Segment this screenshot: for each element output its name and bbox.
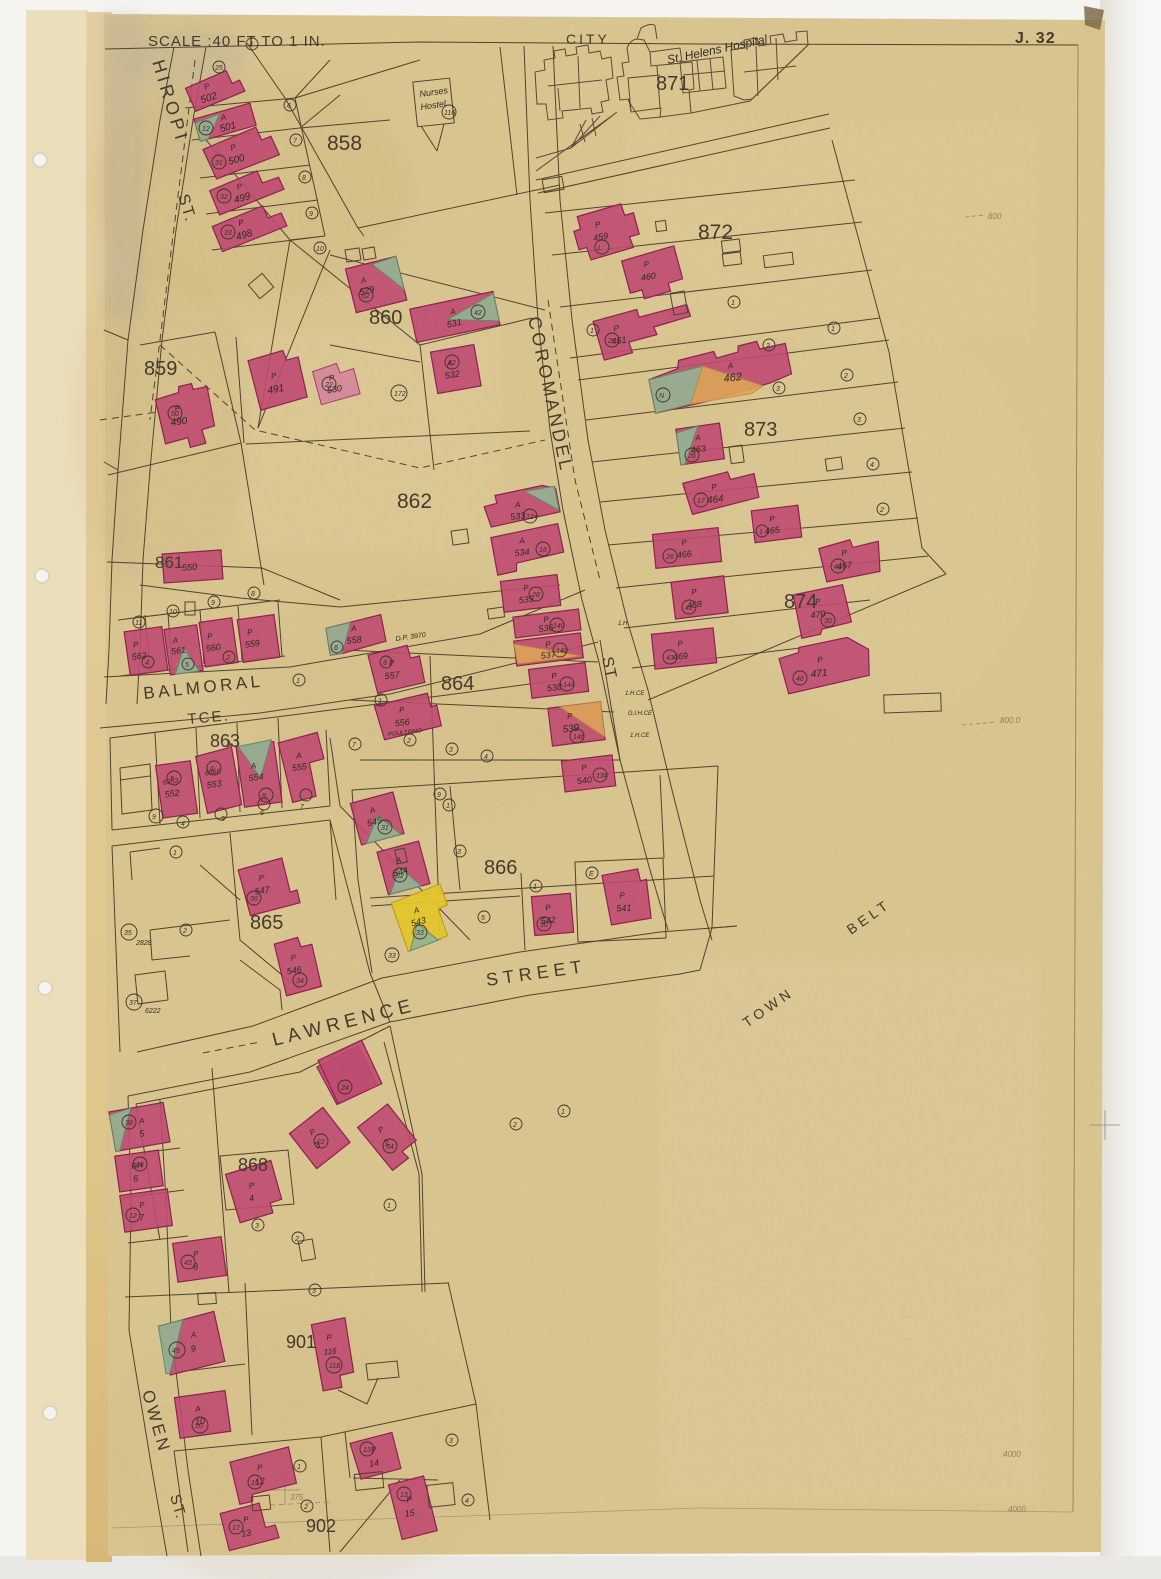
svg-text:2: 2 [294,1236,299,1243]
svg-text:863: 863 [210,731,240,751]
svg-text:540: 540 [576,775,592,787]
svg-text:552: 552 [164,788,180,800]
svg-text:3: 3 [449,1438,453,1445]
svg-text:33: 33 [388,953,396,960]
svg-text:5: 5 [170,776,174,783]
svg-text:E: E [589,871,594,878]
svg-text:874: 874 [784,591,817,613]
svg-text:32: 32 [396,873,404,880]
svg-text:561: 561 [170,645,186,657]
svg-text:554: 554 [248,771,264,783]
svg-text:124: 124 [526,514,538,521]
svg-text:4: 4 [145,660,149,667]
svg-text:A: A [295,751,303,761]
svg-text:8: 8 [383,660,387,667]
svg-text:34: 34 [296,978,304,985]
svg-text:17: 17 [232,1525,241,1532]
svg-text:9: 9 [211,600,215,607]
svg-text:32: 32 [220,194,228,201]
svg-text:2: 2 [765,343,770,350]
svg-text:866: 866 [484,857,517,879]
svg-text:31: 31 [381,825,389,832]
svg-text:11: 11 [135,620,142,627]
svg-text:2: 2 [225,655,230,662]
svg-text:A: A [694,433,702,443]
svg-text:42: 42 [474,310,482,317]
svg-text:22: 22 [316,1139,325,1146]
svg-text:4: 4 [465,1498,469,1505]
svg-text:4000: 4000 [1008,1505,1026,1514]
svg-text:4: 4 [484,754,488,761]
svg-text:1: 1 [173,850,177,857]
svg-text:1: 1 [533,884,537,891]
svg-text:J. 32: J. 32 [1015,30,1056,47]
svg-text:871: 871 [656,73,689,95]
svg-text:14: 14 [368,1458,379,1469]
svg-text:1: 1 [297,1464,301,1471]
svg-text:A: A [249,761,257,771]
svg-text:558: 558 [346,634,362,646]
svg-text:375: 375 [290,1493,304,1502]
svg-text:34: 34 [386,1144,394,1151]
svg-text:873: 873 [744,419,777,441]
svg-text:466: 466 [676,549,692,561]
svg-text:25: 25 [214,65,223,72]
svg-text:42: 42 [448,360,456,367]
svg-text:5: 5 [481,915,485,922]
svg-text:46: 46 [796,676,804,683]
svg-text:134: 134 [596,773,608,780]
svg-text:118: 118 [329,1363,340,1370]
svg-text:62: 62 [362,293,370,300]
svg-text:862: 862 [397,490,432,513]
svg-text:559: 559 [244,638,260,650]
svg-text:38: 38 [125,1120,133,1127]
svg-text:3: 3 [857,417,861,424]
svg-text:2: 2 [843,373,848,380]
svg-text:8: 8 [302,175,306,182]
svg-text:15: 15 [251,1480,259,1487]
svg-text:4: 4 [870,462,874,469]
svg-text:859: 859 [144,358,177,380]
svg-text:30: 30 [824,618,832,625]
svg-text:865: 865 [250,912,283,934]
svg-text:A: A [189,1330,197,1340]
svg-text:1: 1 [731,300,735,307]
svg-text:560: 560 [205,642,221,654]
svg-text:33: 33 [416,930,424,937]
svg-text:1.H: 1.H [618,621,628,627]
svg-text:1: 1 [759,529,763,536]
svg-text:8: 8 [262,793,266,800]
svg-text:L: L [598,245,602,252]
svg-text:6: 6 [287,103,291,110]
svg-text:800.0: 800.0 [1000,716,1021,725]
svg-text:550: 550 [182,562,198,573]
svg-text:9: 9 [152,814,156,821]
svg-text:536: 536 [538,622,554,634]
svg-text:A: A [171,636,179,646]
svg-text:2: 2 [406,738,411,745]
svg-text:6: 6 [334,645,338,652]
svg-text:26: 26 [135,1162,144,1169]
svg-text:4: 4 [249,42,253,49]
svg-text:A: A [514,500,521,510]
svg-text:10: 10 [316,246,324,253]
svg-text:30: 30 [540,922,548,929]
svg-text:144: 144 [563,682,575,689]
svg-text:140: 140 [553,623,565,630]
svg-text:33: 33 [224,230,232,237]
svg-text:SCALE :40 FT TO 1 IN.: SCALE :40 FT TO 1 IN. [148,33,326,50]
svg-text:37: 37 [129,1000,138,1007]
svg-text:541: 541 [616,903,632,914]
svg-text:3: 3 [312,1288,316,1295]
svg-text:858: 858 [327,132,362,155]
svg-text:26: 26 [687,453,696,460]
svg-text:464: 464 [706,493,724,506]
svg-text:3: 3 [449,747,453,754]
svg-text:41: 41 [834,564,842,571]
svg-text:G.I.H.CE: G.I.H.CE [628,711,653,717]
svg-text:1.H.CE: 1.H.CE [625,691,645,697]
svg-text:31: 31 [215,160,223,167]
svg-text:5: 5 [185,662,189,669]
svg-text:901: 901 [286,1332,316,1352]
svg-text:2: 2 [512,1122,517,1129]
svg-text:10: 10 [195,1423,203,1430]
svg-text:45: 45 [172,1348,180,1355]
svg-text:26: 26 [607,338,616,345]
svg-text:142: 142 [556,648,568,655]
svg-text:A: A [726,361,734,371]
svg-text:12: 12 [129,1213,137,1220]
svg-text:2828: 2828 [135,940,152,947]
svg-text:800: 800 [988,212,1002,221]
svg-text:471: 471 [810,668,828,681]
svg-text:902: 902 [306,1516,336,1536]
svg-text:36: 36 [250,896,258,903]
svg-text:9: 9 [437,792,441,799]
svg-text:A: A [518,536,525,546]
svg-text:3: 3 [457,849,461,856]
svg-text:6222: 6222 [145,1008,161,1015]
svg-text:3: 3 [776,386,780,393]
svg-text:146: 146 [573,734,585,741]
svg-text:26: 26 [665,554,674,561]
svg-text:13: 13 [363,1447,371,1454]
svg-text:9: 9 [309,211,313,218]
svg-text:13: 13 [400,1492,408,1499]
svg-text:116: 116 [444,110,455,117]
svg-text:8: 8 [251,591,255,598]
svg-text:1: 1 [446,803,450,810]
svg-text:42: 42 [685,605,693,612]
svg-text:6: 6 [210,766,214,773]
svg-text:868: 868 [238,1155,268,1175]
svg-text:50: 50 [171,411,179,418]
svg-text:3: 3 [255,1223,259,1230]
svg-text:35: 35 [124,930,132,937]
svg-text:553: 553 [206,778,222,790]
svg-text:534: 534 [514,547,530,559]
svg-text:22: 22 [324,382,333,389]
svg-text:A: A [194,1404,202,1414]
svg-text:2: 2 [303,1504,308,1511]
svg-text:116: 116 [323,1347,337,1357]
svg-text:557: 557 [384,669,401,681]
svg-text:462: 462 [723,371,743,385]
svg-text:1: 1 [296,678,300,685]
svg-text:172: 172 [394,391,406,398]
svg-text:1: 1 [831,326,835,333]
svg-text:1.H.CE: 1.H.CE [630,733,650,739]
svg-text:860: 860 [369,307,402,329]
svg-text:5: 5 [221,816,225,823]
svg-text:24: 24 [340,1085,349,1092]
svg-text:872: 872 [698,221,733,244]
svg-text:861: 861 [155,553,183,572]
svg-text:4: 4 [181,821,185,828]
svg-text:1: 1 [378,698,382,705]
svg-text:28: 28 [531,592,540,599]
svg-text:1: 1 [561,1109,565,1116]
svg-text:A: A [350,624,357,634]
svg-text:CITY: CITY [566,31,610,47]
svg-text:1: 1 [590,328,594,335]
svg-text:2: 2 [879,507,884,514]
svg-text:16: 16 [539,547,547,554]
svg-text:6: 6 [260,810,264,817]
svg-text:1: 1 [387,1203,391,1210]
svg-text:17: 17 [697,498,706,505]
svg-text:4000: 4000 [1003,1450,1021,1459]
svg-text:10: 10 [169,609,177,616]
svg-text:556: 556 [394,717,410,729]
svg-text:12: 12 [202,126,210,133]
svg-text:43: 43 [184,1260,192,1267]
svg-text:43: 43 [666,655,674,662]
svg-text:864: 864 [441,673,474,695]
svg-text:2: 2 [182,928,187,935]
